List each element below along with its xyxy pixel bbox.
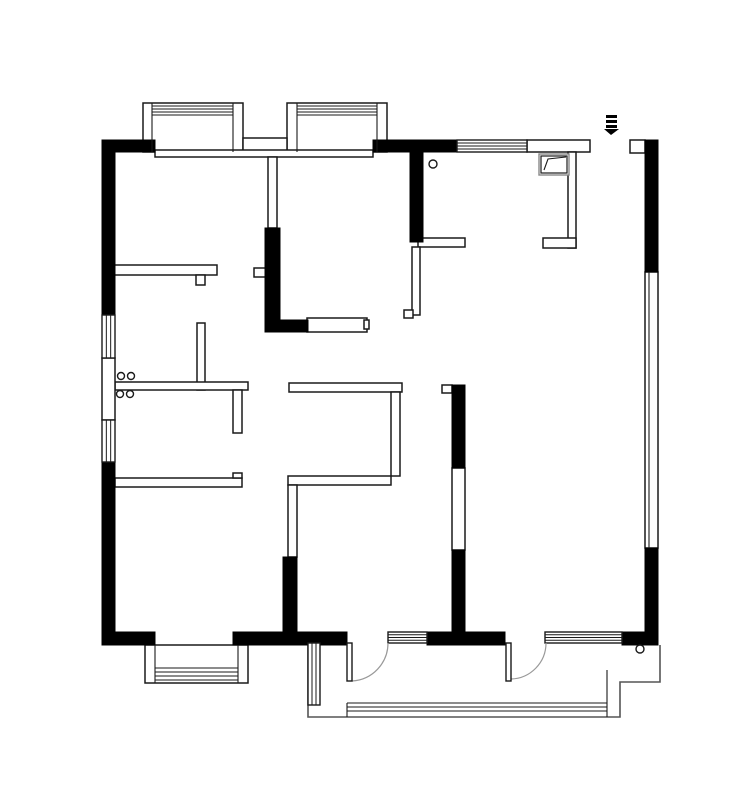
wall-segment [233, 632, 347, 645]
circle-marker [127, 391, 134, 398]
door-leaf [506, 643, 511, 681]
wall-segment [645, 140, 658, 272]
wall-segment [427, 632, 505, 645]
partition-wall [630, 140, 645, 153]
bay-window-outline [452, 468, 465, 550]
door-swing-arc [352, 643, 388, 681]
bay-window-outline [287, 103, 387, 152]
circle-marker [429, 160, 437, 168]
partition-wall [543, 238, 576, 248]
wall-segment [452, 550, 465, 632]
partition-wall [412, 247, 420, 315]
window [102, 315, 115, 358]
wall-segment [622, 632, 658, 645]
partition-wall [233, 473, 242, 478]
partition-wall [102, 358, 115, 420]
wall-segment [452, 385, 465, 468]
partition-wall [364, 320, 369, 329]
partition-wall [404, 310, 413, 318]
partition-wall [196, 275, 205, 285]
partition-wall [288, 485, 297, 557]
entry-arrow-icon [606, 115, 617, 118]
wall-segment [102, 140, 155, 152]
bay-window-outline [645, 272, 658, 548]
partition-wall [113, 265, 217, 275]
partition-wall [289, 383, 402, 392]
circle-marker [118, 373, 125, 380]
door-swing-arc [511, 643, 546, 679]
wall-segment [102, 632, 155, 645]
wall-segment [410, 140, 423, 242]
entry-arrow-icon [606, 120, 617, 123]
partition-wall [418, 238, 465, 247]
partition-wall [288, 476, 391, 485]
partition-wall [527, 140, 590, 152]
wall-segment [283, 557, 297, 632]
partition-wall [307, 318, 367, 332]
wall-segment [265, 228, 280, 320]
partition-wall [115, 478, 242, 487]
bay-window-outline [143, 103, 243, 152]
window [102, 420, 115, 462]
partition-wall [442, 385, 452, 393]
wall-segment [102, 462, 115, 645]
circle-marker [636, 645, 644, 653]
partition-wall [268, 157, 277, 228]
partition-wall [155, 150, 373, 157]
door-leaf [347, 643, 352, 681]
partition-wall [115, 382, 248, 390]
partition-wall [197, 323, 205, 390]
window [308, 643, 320, 705]
circle-marker [117, 391, 124, 398]
entry-arrow-icon [604, 129, 619, 135]
wall-segment [645, 548, 658, 645]
entry-arrow-icon [606, 125, 617, 128]
floor-plan-drawing [0, 0, 750, 806]
partition-wall [391, 392, 400, 476]
bay-window-outline [145, 645, 248, 683]
wall-segment [102, 140, 115, 315]
floor-plan-page [0, 0, 750, 806]
wall-segment [265, 320, 308, 332]
partition-wall [254, 268, 266, 277]
circle-marker [128, 373, 135, 380]
partition-wall [233, 390, 242, 433]
